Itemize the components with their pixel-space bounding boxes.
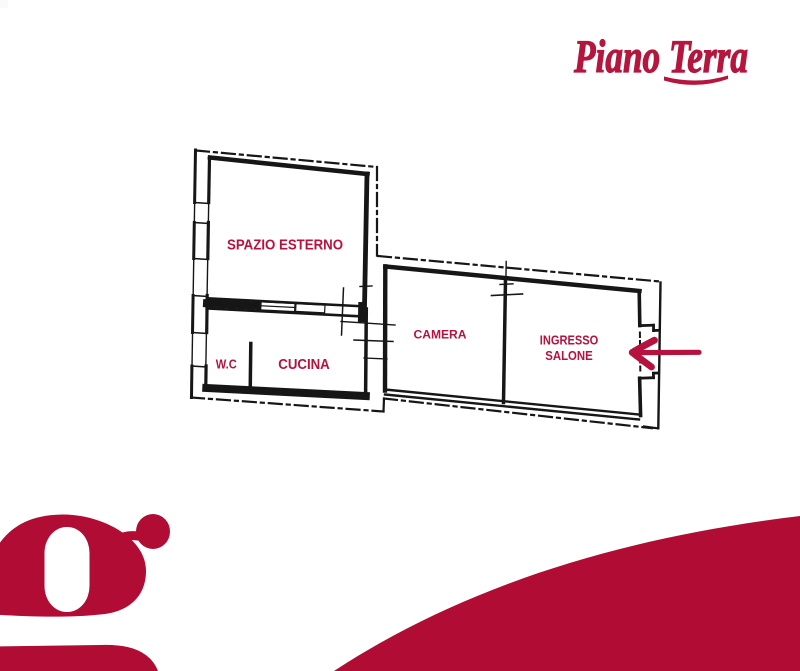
svg-text:CUCINA: CUCINA [278,357,330,373]
svg-text:Piano Terra: Piano Terra [573,31,748,83]
svg-text:INGRESSO: INGRESSO [540,333,599,348]
svg-text:SPAZIO ESTERNO: SPAZIO ESTERNO [227,237,343,254]
svg-text:CAMERA: CAMERA [414,328,467,342]
svg-text:SALONE: SALONE [545,348,593,363]
svg-text:W.C: W.C [216,357,237,372]
